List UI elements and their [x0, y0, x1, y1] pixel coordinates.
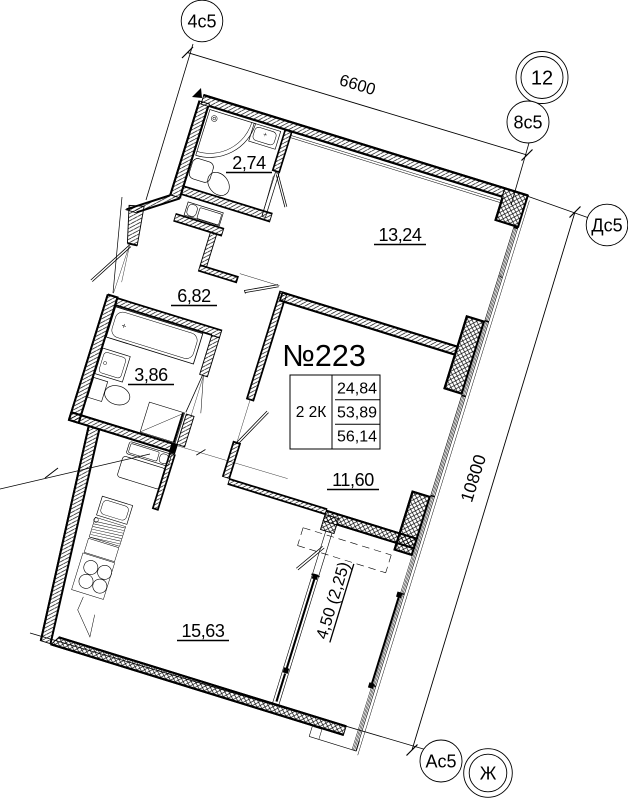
svg-text:53,89: 53,89	[337, 405, 377, 422]
svg-text:10800: 10800	[457, 452, 491, 505]
svg-text:3,86: 3,86	[134, 365, 168, 385]
svg-text:2 2К: 2 2К	[296, 404, 327, 421]
svg-text:6600: 6600	[337, 71, 377, 99]
svg-text:24,84: 24,84	[337, 381, 377, 398]
svg-text:Дс5: Дс5	[591, 215, 622, 235]
svg-text:№223: №223	[282, 339, 366, 373]
svg-text:2,74: 2,74	[232, 153, 266, 173]
svg-text:12: 12	[531, 68, 553, 90]
svg-text:Ж: Ж	[480, 763, 497, 783]
svg-text:8с5: 8с5	[513, 112, 542, 132]
svg-text:Ас5: Ас5	[425, 751, 456, 771]
svg-text:13,24: 13,24	[378, 225, 421, 245]
svg-text:4с5: 4с5	[187, 11, 216, 31]
svg-text:11,60: 11,60	[332, 470, 374, 490]
svg-text:15,63: 15,63	[181, 621, 224, 641]
svg-text:6,82: 6,82	[177, 286, 211, 306]
svg-text:56,14: 56,14	[337, 429, 377, 446]
svg-text:4,50 (2,25): 4,50 (2,25)	[313, 560, 354, 642]
